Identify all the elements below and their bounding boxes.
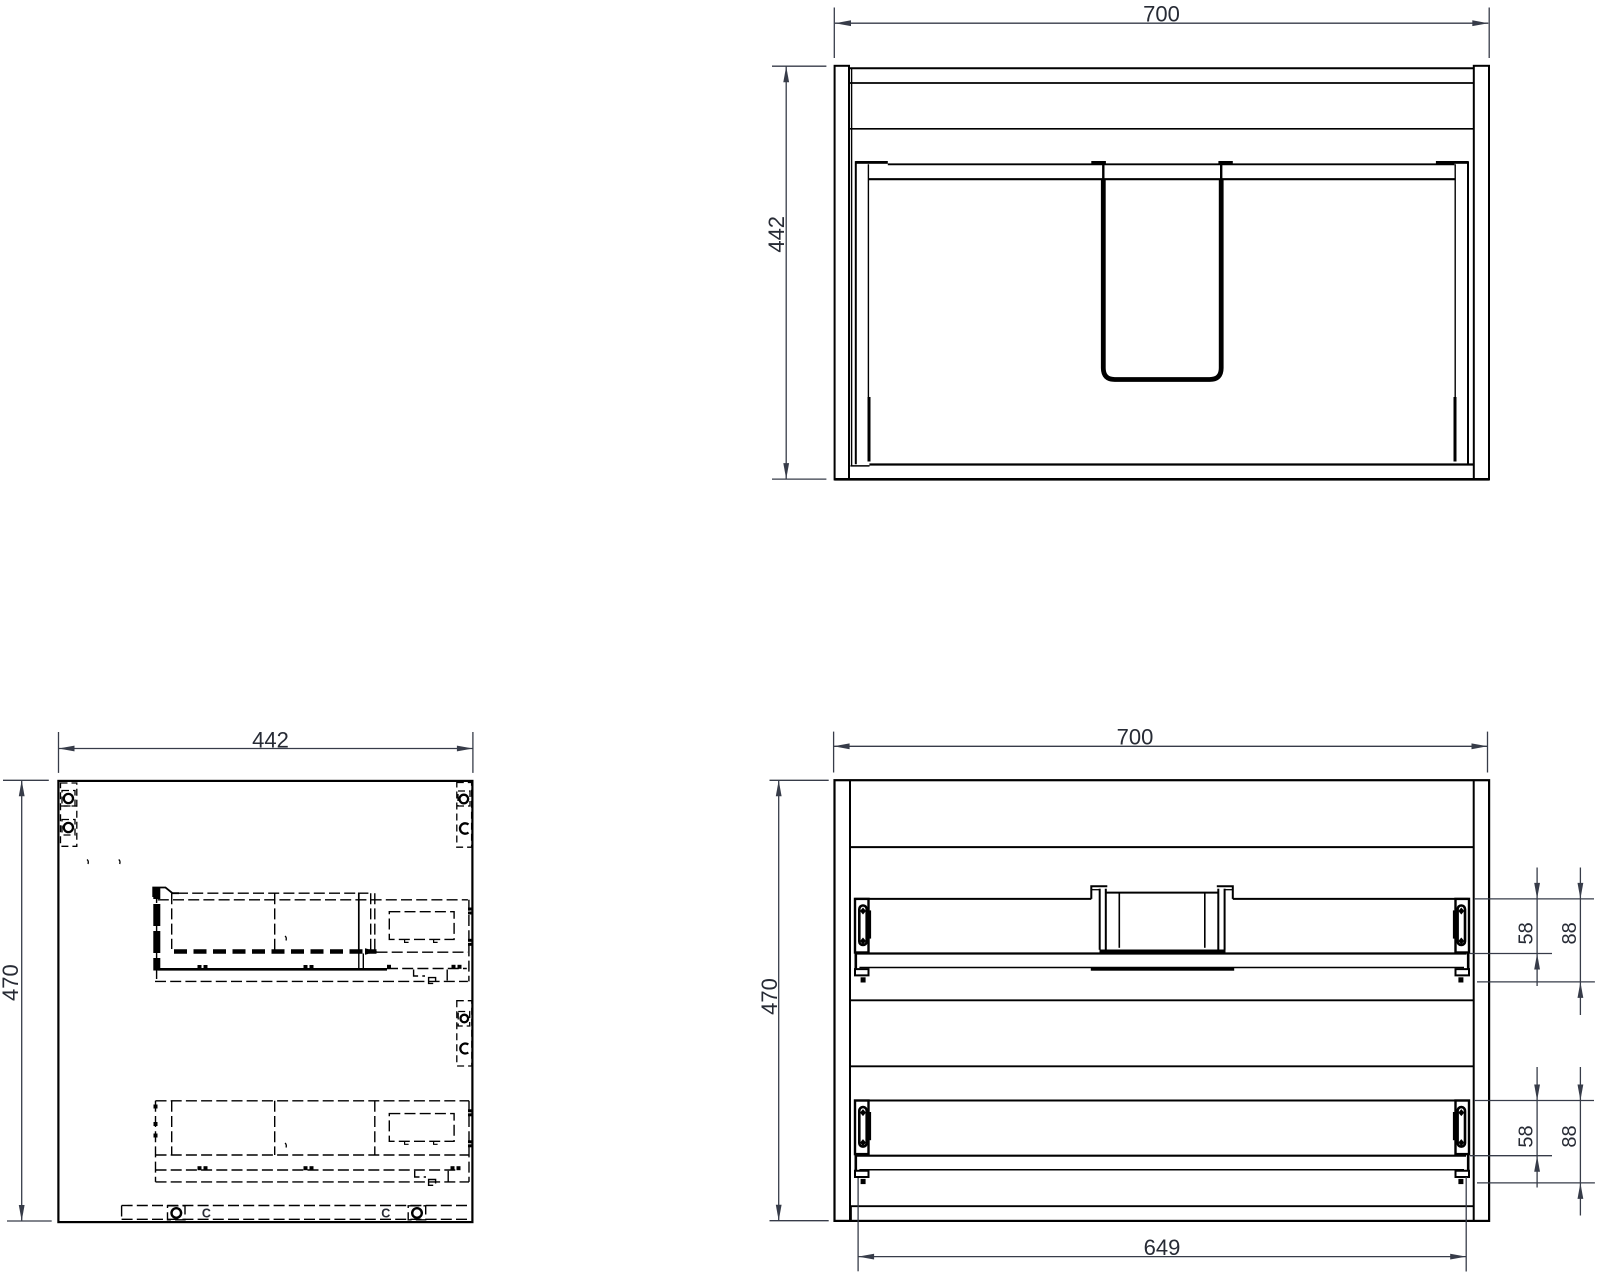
- svg-text:88: 88: [1559, 1125, 1581, 1147]
- svg-text:649: 649: [1144, 1235, 1181, 1260]
- svg-text:88: 88: [1559, 922, 1581, 944]
- svg-text:C: C: [381, 1207, 390, 1221]
- svg-text:470: 470: [0, 964, 23, 1001]
- svg-text:C: C: [202, 1207, 211, 1221]
- svg-text:58: 58: [1516, 922, 1538, 944]
- svg-text:442: 442: [764, 216, 789, 253]
- svg-text:470: 470: [757, 978, 782, 1015]
- svg-text:442: 442: [252, 728, 289, 753]
- svg-text:700: 700: [1117, 725, 1154, 750]
- svg-text:700: 700: [1143, 2, 1180, 27]
- svg-text:58: 58: [1516, 1125, 1538, 1147]
